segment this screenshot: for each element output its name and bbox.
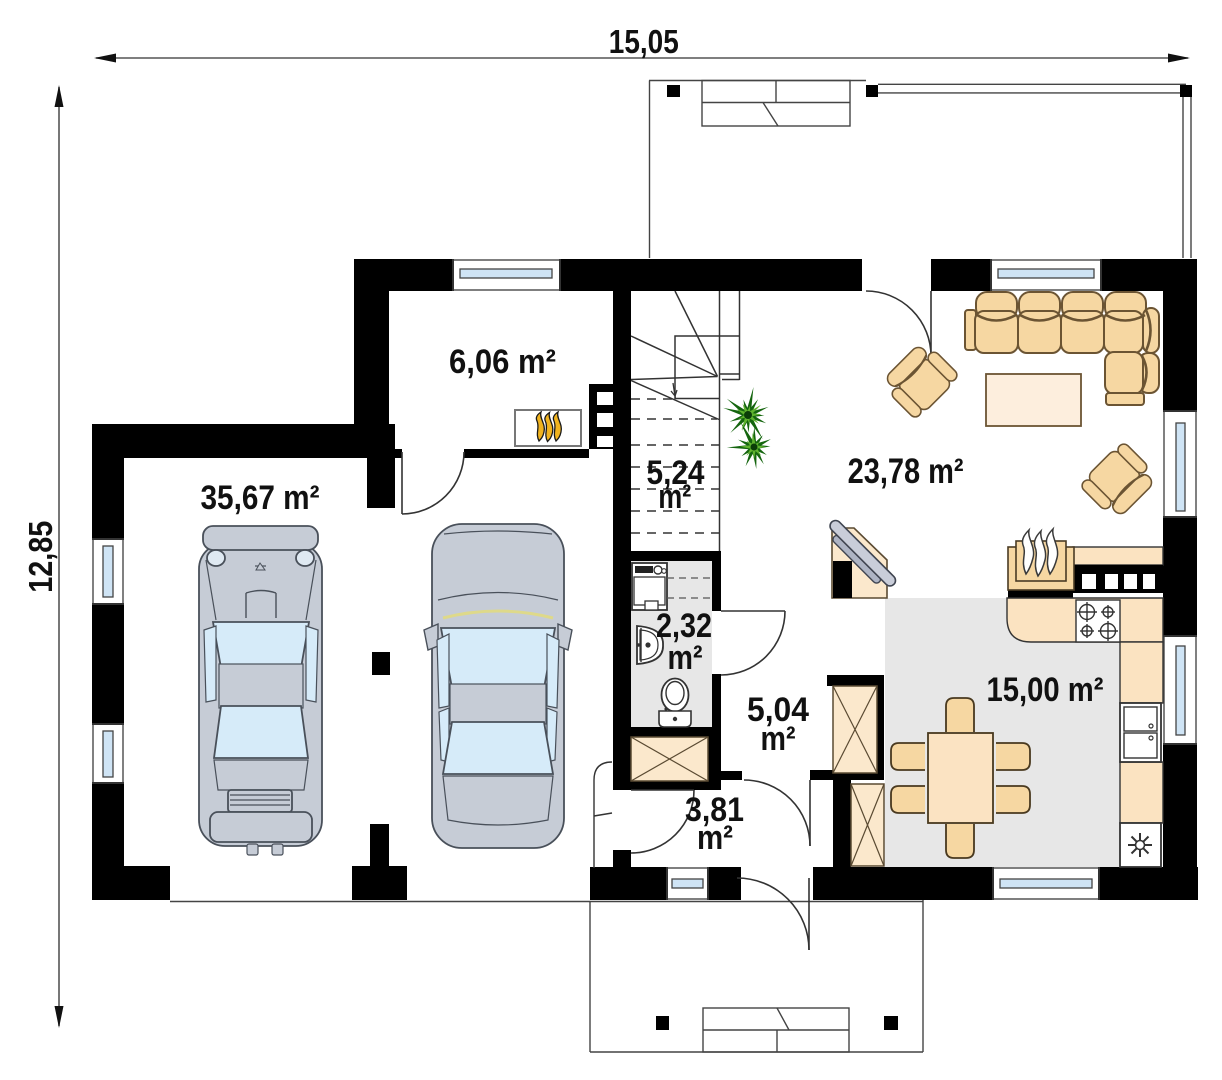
- svg-text:m²: m²: [658, 478, 691, 516]
- svg-text:15,00 m²: 15,00 m²: [987, 671, 1104, 709]
- svg-text:m²: m²: [697, 819, 733, 857]
- svg-text:12,85: 12,85: [22, 521, 59, 593]
- svg-text:m²: m²: [761, 720, 796, 758]
- svg-text:35,67 m²: 35,67 m²: [201, 479, 320, 517]
- svg-text:15,05: 15,05: [609, 23, 679, 60]
- svg-text:6,06 m²: 6,06 m²: [449, 343, 556, 381]
- svg-text:23,78 m²: 23,78 m²: [848, 452, 964, 491]
- svg-text:m²: m²: [668, 639, 703, 677]
